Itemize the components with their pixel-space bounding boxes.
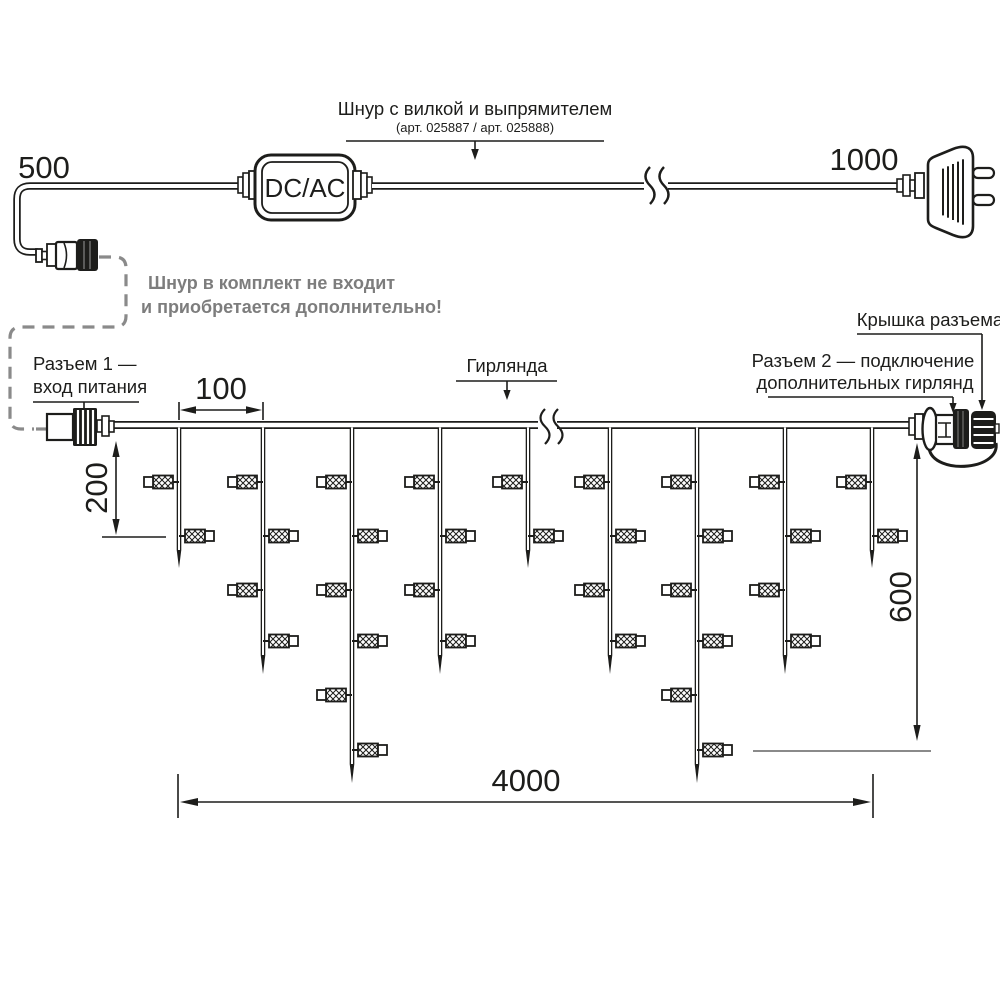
garland-label: Гирлянда [466, 355, 548, 376]
lamp [697, 530, 732, 543]
lamp [317, 689, 352, 702]
icicle-drop [662, 428, 732, 784]
connector-cap [971, 411, 999, 449]
lamp [263, 530, 298, 543]
connector2 [909, 408, 999, 466]
connector2-label-line1: Разъем 2 — подключение [752, 350, 975, 371]
power-cord-assembly: Шнур с вилкой и выпрямителем (арт. 02588… [17, 98, 994, 271]
drop-tip [783, 655, 788, 674]
lamp [750, 584, 785, 597]
lamp [610, 530, 645, 543]
drop-tip [261, 655, 266, 674]
drop-tip [177, 550, 182, 568]
connector2-callout: Разъем 2 — подключение дополнительных ги… [752, 350, 975, 413]
lamp [837, 476, 872, 489]
note-line2: и приобретается дополнительно! [141, 297, 442, 317]
garland-schematic: Шнур с вилкой и выпрямителем (арт. 02588… [0, 0, 1000, 1000]
lamp [528, 530, 563, 543]
dim-4000-label: 4000 [492, 763, 561, 798]
drop-tip [526, 550, 531, 568]
icicle-drop [493, 428, 563, 569]
dim-100-label: 100 [195, 371, 247, 406]
arrow-down-icon [978, 400, 985, 410]
connector1-label-line1: Разъем 1 — [33, 353, 137, 374]
lamp [872, 530, 907, 543]
icicle-drop [837, 428, 907, 569]
dim-200-label: 200 [79, 462, 114, 514]
lamp [144, 476, 179, 489]
lamp [697, 635, 732, 648]
lamp [440, 530, 475, 543]
drop-tip [608, 655, 613, 674]
drop-tip [695, 764, 700, 783]
lamp [575, 584, 610, 597]
connector1 [47, 408, 114, 446]
arrow-up-icon [913, 443, 920, 459]
plug-pin-top [973, 168, 994, 178]
dcac-adapter: DC/AC [238, 155, 372, 220]
arrow-down-icon [471, 149, 479, 160]
dim-1000-label: 1000 [830, 142, 899, 177]
lamp [575, 476, 610, 489]
arrow-right-icon [853, 798, 871, 806]
lamp [785, 635, 820, 648]
arrow-right-icon [246, 406, 262, 414]
lamp [228, 584, 263, 597]
garland-figure [114, 425, 910, 783]
arrow-left-icon [180, 798, 198, 806]
connector2-label-line2: дополнительных гирлянд [756, 372, 973, 393]
lamp [610, 635, 645, 648]
arrow-down-icon [913, 725, 920, 741]
dim-600-label: 600 [883, 571, 918, 623]
power-plug [897, 147, 994, 237]
icicle-drop [750, 428, 820, 675]
lamp [352, 530, 387, 543]
cap-label: Крышка разъема [857, 309, 1000, 330]
lamp [697, 744, 732, 757]
dim-500-label: 500 [18, 150, 70, 185]
cord-break-icon [646, 167, 669, 204]
arrow-down-icon [112, 519, 119, 535]
icicle-drop [575, 428, 645, 675]
cord-label-leader [346, 141, 604, 160]
lamp [179, 530, 214, 543]
lamp [662, 584, 697, 597]
lamp [662, 689, 697, 702]
lamp [352, 635, 387, 648]
lamp [317, 476, 352, 489]
lamp [440, 635, 475, 648]
cord-left-segment [17, 186, 240, 252]
icicle-drop [317, 428, 387, 784]
lamp [405, 584, 440, 597]
lamp [662, 476, 697, 489]
wire-break-icon [538, 409, 563, 444]
drop-tip [870, 550, 875, 568]
icicle-drop [228, 428, 298, 675]
cord-right-segment [372, 167, 898, 204]
lamp [493, 476, 528, 489]
icicle-drop [144, 428, 214, 569]
lamp [228, 476, 263, 489]
connector1-label-line2: вход питания [33, 376, 147, 397]
lamp [263, 635, 298, 648]
arrow-down-icon [503, 390, 510, 400]
diagram-canvas: Шнур с вилкой и выпрямителем (арт. 02588… [0, 0, 1000, 1000]
lamp [750, 476, 785, 489]
cord-article-numbers: (арт. 025887 / арт. 025888) [396, 120, 554, 135]
dim-100: 100 [179, 371, 263, 420]
lamp [785, 530, 820, 543]
lamp [317, 584, 352, 597]
drop-tip [438, 655, 443, 674]
dim-4000: 4000 [178, 763, 873, 818]
drop-tip [350, 764, 355, 783]
dcac-label: DC/AC [265, 173, 346, 203]
arrow-up-icon [112, 441, 119, 457]
lamp [405, 476, 440, 489]
plug-pin-bottom [973, 195, 994, 205]
cord-label: Шнур с вилкой и выпрямителем [338, 98, 613, 119]
garland-callout: Гирлянда [456, 355, 557, 400]
arrow-left-icon [180, 406, 196, 414]
lamp [352, 744, 387, 757]
note-line1: Шнур в комплект не входит [148, 273, 395, 293]
icicle-drop [405, 428, 475, 675]
power-input-connector [36, 239, 98, 271]
dashed-connection-path [10, 257, 126, 429]
